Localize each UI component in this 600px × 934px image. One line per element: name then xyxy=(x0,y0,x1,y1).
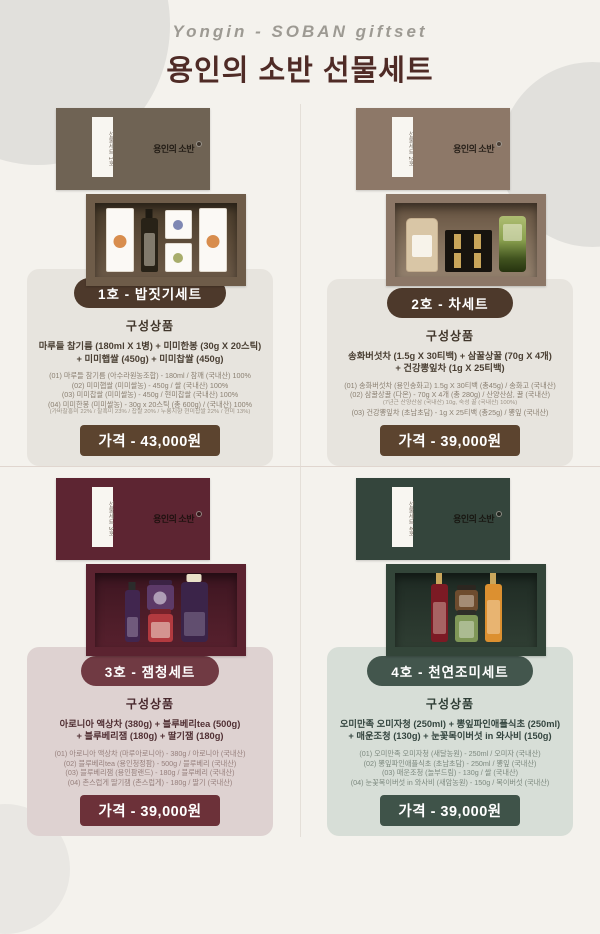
blueberry-jam-jar xyxy=(147,585,174,610)
gift-box-base xyxy=(86,194,246,286)
composition-heading: 구성상품 xyxy=(35,317,265,334)
composition-summary: 송화버섯차 (1.5g X 30티백) + 삼꿀상꿀 (70g X 4개) + … xyxy=(335,350,565,375)
composition-heading: 구성상품 xyxy=(335,327,565,344)
composition-summary-line2: + 블루베리잼 (180g) + 딸기잼 (180g) xyxy=(35,730,265,743)
gift-box-base xyxy=(386,194,546,286)
mini-packet-green xyxy=(165,243,192,272)
composition-summary: 오미만족 오미자청 (250ml) + 뽕잎파인애플식초 (250ml) + 매… xyxy=(335,718,565,743)
gift-box-lid: 선물세트 2호 용인의 소반 xyxy=(356,108,510,190)
detail-line: (02) 미미햅쌀 (미미쌀농) - 450g / 쌀 (국내산) 100% xyxy=(35,381,265,391)
brand-stamp-icon xyxy=(196,141,202,147)
item-stack xyxy=(455,590,478,642)
detail-line: (03) 건강뽕잎차 (초남초담) - 1g X 25티백 (총25g) / 뽕… xyxy=(335,408,565,418)
gift-set-section: 선물세트 2호 용인의 소반 2호 - 차세트 구성상품 송화버섯차 (1.5g… xyxy=(300,96,600,466)
gift-box-contents xyxy=(95,573,237,647)
vinegar-bottle xyxy=(485,584,502,642)
gift-set-grid: 선물세트 1호 용인의 소반 1호 - 밥짓기세트 구성상품 마루들 참기름 (… xyxy=(0,96,600,836)
page-title: 용인의 소반 선물세트 xyxy=(0,47,600,89)
brand-logo: 용인의 소반 xyxy=(453,512,494,525)
gift-set-section: 선물세트 3호 용인의 소반 3호 - 잼청세트 구성상품 아로니아 액상차 (… xyxy=(0,466,300,836)
info-card: 1호 - 밥짓기세트 구성상품 마루들 참기름 (180ml X 1병) + 미… xyxy=(27,269,273,466)
composition-heading: 구성상품 xyxy=(335,695,565,712)
price-badge: 가격 - 39,000원 xyxy=(80,795,219,826)
brand-logo: 용인의 소반 xyxy=(453,142,494,155)
lid-label: 선물세트 3호 xyxy=(92,487,113,547)
gift-set-section: 선물세트 4호 용인의 소반 4호 - 천연조미세트 구성상품 오미만족 오미자… xyxy=(300,466,600,836)
detail-list: (01) 아로니아 액상차 (마루아로니아) - 380g / 아로니아 (국내… xyxy=(35,749,265,787)
composition-summary: 아로니아 액상차 (380g) + 블루베리tea (500g) + 블루베리잼… xyxy=(35,718,265,743)
product-photo: 선물세트 1호 용인의 소반 xyxy=(52,102,248,259)
strawberry-jam-jar xyxy=(148,614,173,642)
lid-label: 선물세트 2호 xyxy=(392,117,413,177)
price-badge: 가격 - 39,000원 xyxy=(380,425,519,456)
info-card: 4호 - 천연조미세트 구성상품 오미만족 오미자청 (250ml) + 뽕잎파… xyxy=(327,647,573,836)
detail-list: (01) 송화버섯차 (용인송화고) 1.5g X 30티백 (총45g) / … xyxy=(335,381,565,417)
blueberry-tea-bottle xyxy=(181,582,208,642)
wasabi-jar xyxy=(455,615,478,642)
composition-heading: 구성상품 xyxy=(35,695,265,712)
gift-box-lid: 선물세트 3호 용인의 소반 xyxy=(56,478,210,560)
set-title-badge: 2호 - 차세트 xyxy=(387,288,512,318)
mushroom-tea-canister xyxy=(406,218,438,272)
rice-package xyxy=(199,208,227,272)
price-badge: 가격 - 39,000원 xyxy=(380,795,519,826)
item-stack xyxy=(165,210,192,272)
detail-line: (04) 미미한봉 (미미쌀농) - 30g x 20스틱 (총 600g) /… xyxy=(35,400,265,410)
brand-stamp-icon xyxy=(496,141,502,147)
set-title-badge: 4호 - 천연조미세트 xyxy=(367,656,532,686)
detail-line: (가바찰홍미 22% / 찰흑미 23% / 찹쌀 20% / 누룽지향 현미찹… xyxy=(35,409,265,417)
sesame-oil-bottle xyxy=(141,218,158,272)
composition-summary-line2: + 매운조청 (130g) + 눈꽃목이버섯 in 와사비 (150g) xyxy=(335,730,565,743)
detail-list: (01) 오미만족 오미자청 (새달농원) - 250ml / 오미자 (국내산… xyxy=(335,749,565,787)
product-photo: 선물세트 3호 용인의 소반 xyxy=(52,472,248,637)
composition-summary: 마루들 참기름 (180ml X 1병) + 미미한봉 (30g X 20스틱)… xyxy=(35,340,265,365)
detail-line: (01) 오미만족 오미자청 (새달농원) - 250ml / 오미자 (국내산… xyxy=(335,749,565,759)
detail-line: (03) 미미찹쌀 (미미쌀농) - 450g / 현미찹쌀 (국내산) 100… xyxy=(35,390,265,400)
detail-line: (01) 아로니아 액상차 (마루아로니아) - 380g / 아로니아 (국내… xyxy=(35,749,265,759)
gift-box-base xyxy=(386,564,546,656)
product-photo: 선물세트 2호 용인의 소반 xyxy=(352,102,548,269)
chojung-jar xyxy=(455,590,478,611)
composition-summary-line2: + 미미햅쌀 (450g) + 미미찹쌀 (450g) xyxy=(35,353,265,366)
composition-summary-line1: 마루들 참기름 (180ml X 1병) + 미미한봉 (30g X 20스틱) xyxy=(35,340,265,353)
composition-summary-line1: 송화버섯차 (1.5g X 30티백) + 삼꿀상꿀 (70g X 4개) xyxy=(335,350,565,363)
gift-box-lid: 선물세트 4호 용인의 소반 xyxy=(356,478,510,560)
detail-line: (7년근 산양산삼 (국내산) 10g, 숙성 꿀 (국내산) 100%) xyxy=(335,400,565,408)
detail-line: (04) 눈꽃목이버섯 in 와사비 (새암농원) - 150g / 목이버섯 … xyxy=(335,778,565,788)
header-script-title: Yongin - SOBAN giftset xyxy=(0,22,600,42)
mini-packet-blue xyxy=(165,210,192,239)
gift-box-contents xyxy=(395,203,537,277)
header: Yongin - SOBAN giftset 용인의 소반 선물세트 xyxy=(0,0,600,96)
product-photo: 선물세트 4호 용인의 소반 xyxy=(352,472,548,637)
detail-line: (02) 블루베리tea (용인청정팜) - 500g / 블루베리 (국내산) xyxy=(35,759,265,769)
rice-package xyxy=(106,208,134,272)
info-card: 2호 - 차세트 구성상품 송화버섯차 (1.5g X 30티백) + 삼꿀상꿀… xyxy=(327,279,573,466)
info-card: 3호 - 잼청세트 구성상품 아로니아 액상차 (380g) + 블루베리tea… xyxy=(27,647,273,836)
brand-stamp-icon xyxy=(496,511,502,517)
gift-box-lid: 선물세트 1호 용인의 소반 xyxy=(56,108,210,190)
composition-summary-line1: 오미만족 오미자청 (250ml) + 뽕잎파인애플식초 (250ml) xyxy=(335,718,565,731)
lid-label: 선물세트 1호 xyxy=(92,117,113,177)
lid-label: 선물세트 4호 xyxy=(392,487,413,547)
detail-line: (03) 블루베리잼 (용인팜랜드) - 180g / 블루베리 (국내산) xyxy=(35,768,265,778)
gift-set-section: 선물세트 1호 용인의 소반 1호 - 밥짓기세트 구성상품 마루들 참기름 (… xyxy=(0,96,300,466)
detail-line: (03) 매운조청 (놀부드림) - 130g / 쌀 (국내산) xyxy=(335,768,565,778)
item-stack xyxy=(147,585,174,642)
composition-summary-line2: + 건강뽕잎차 (1g X 25티백) xyxy=(335,362,565,375)
gift-box-contents xyxy=(395,573,537,647)
brand-logo: 용인의 소반 xyxy=(153,512,194,525)
detail-list: (01) 마루들 참기름 (아수라원농조합) - 180ml / 참깨 (국내산… xyxy=(35,371,265,417)
mulberry-tea-tin xyxy=(499,216,526,272)
brand-stamp-icon xyxy=(196,511,202,517)
detail-line: (02) 삼꿀상꿀 (다온) - 70g X 4개 (총 280g) / 산양산… xyxy=(335,390,565,400)
omija-bottle xyxy=(431,584,448,642)
price-badge: 가격 - 43,000원 xyxy=(80,425,219,456)
aronia-bottle xyxy=(125,590,140,642)
gift-box-base xyxy=(86,564,246,656)
detail-line: (02) 뽕잎파인애플식초 (초남초담) - 250ml / 뽕잎 (국내산) xyxy=(335,759,565,769)
detail-line: (01) 마루들 참기름 (아수라원농조합) - 180ml / 참깨 (국내산… xyxy=(35,371,265,381)
honey-stick-tray xyxy=(445,230,492,272)
composition-summary-line1: 아로니아 액상차 (380g) + 블루베리tea (500g) xyxy=(35,718,265,731)
detail-line: (04) 촌스럽게 딸기잼 (촌스럽게) - 180g / 딸기 (국내산) xyxy=(35,778,265,788)
brand-logo: 용인의 소반 xyxy=(153,142,194,155)
gift-box-contents xyxy=(95,203,237,277)
set-title-badge: 3호 - 잼청세트 xyxy=(81,656,220,686)
detail-line: (01) 송화버섯차 (용인송화고) 1.5g X 30티백 (총45g) / … xyxy=(335,381,565,391)
